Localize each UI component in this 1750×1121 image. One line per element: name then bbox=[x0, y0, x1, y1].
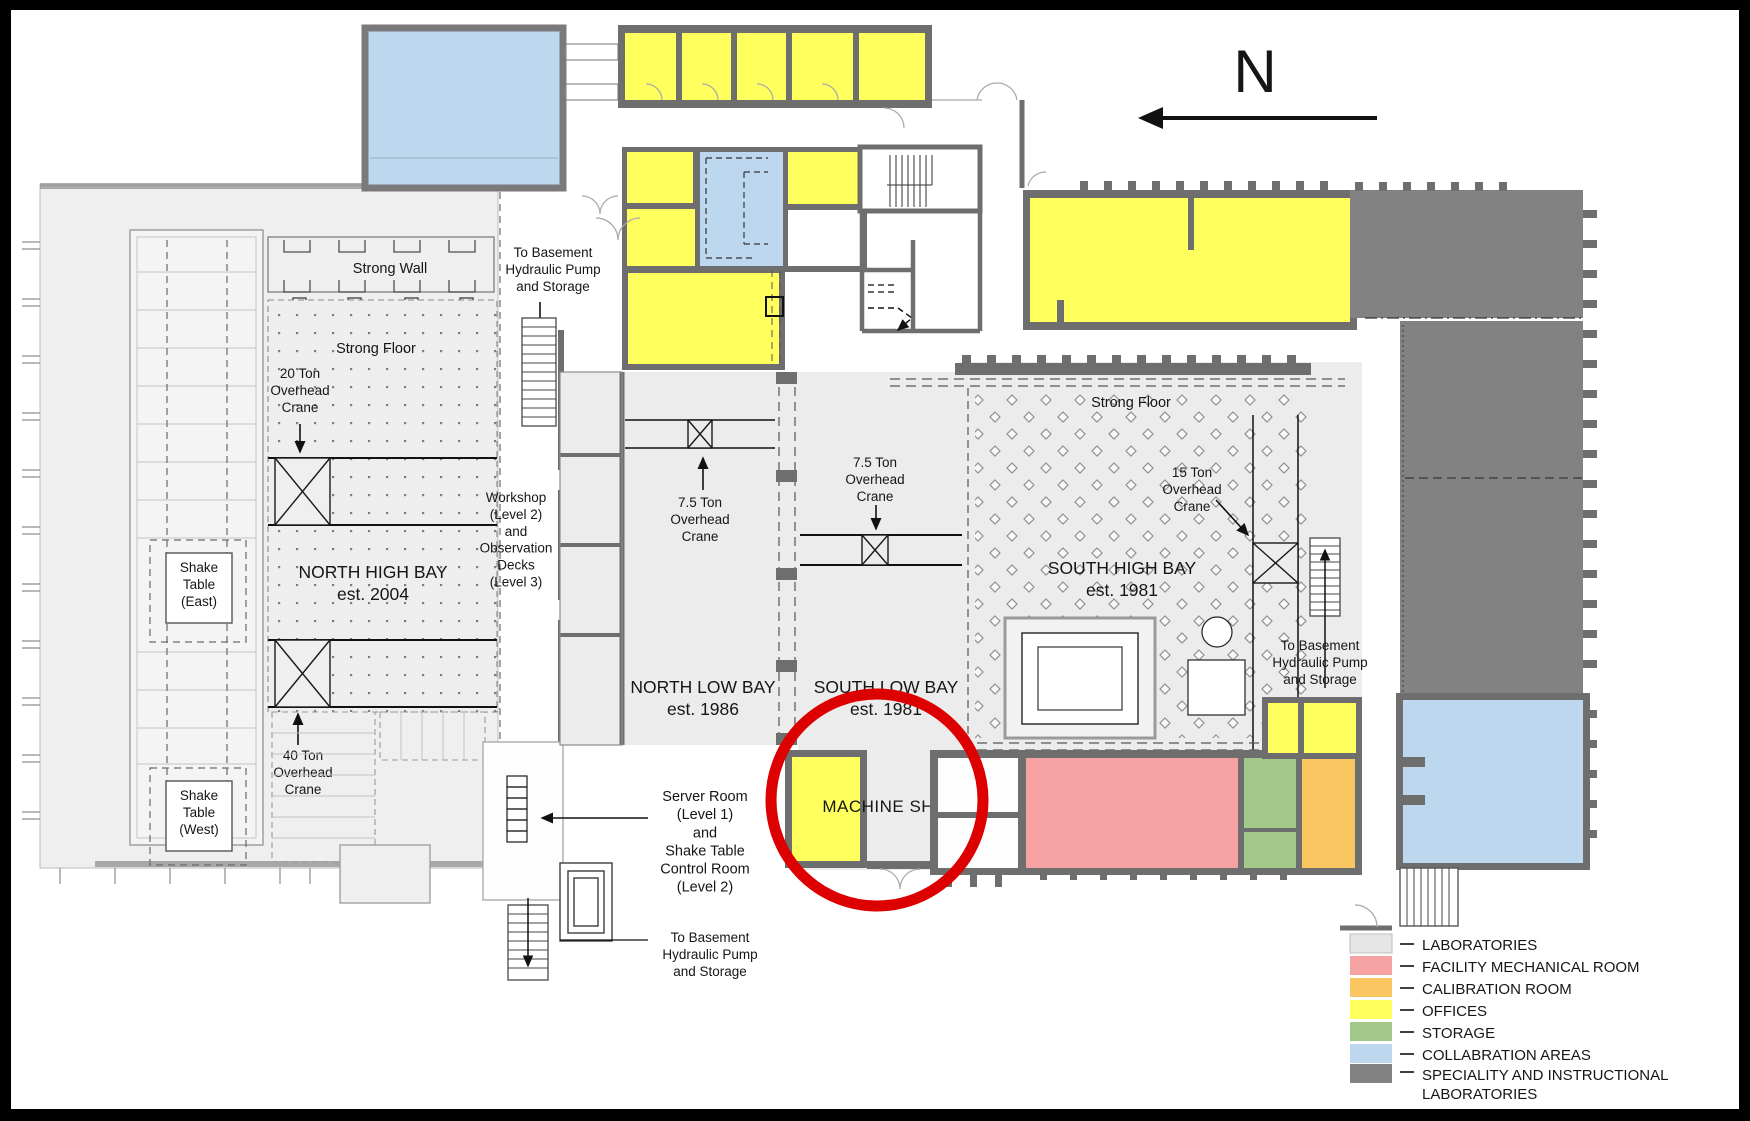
legend-swatch bbox=[1350, 1000, 1392, 1019]
south-protrusion bbox=[340, 845, 430, 903]
office-room bbox=[682, 33, 731, 100]
floor-plan-page: Strong Wall Strong Floor 20 TonOverheadC… bbox=[0, 0, 1750, 1121]
strong-wall-label: Strong Wall bbox=[353, 261, 427, 277]
speciality-labs-north bbox=[1350, 190, 1583, 318]
strong-floor-north-label: Strong Floor bbox=[336, 341, 416, 357]
office-room bbox=[627, 152, 693, 203]
legend-label: OFFICES bbox=[1422, 1003, 1487, 1020]
strong-wall: Strong Wall bbox=[268, 237, 494, 292]
workshop-label: Workshop(Level 2)andObservationDecks(Lev… bbox=[480, 490, 553, 589]
office-room-small bbox=[1304, 703, 1356, 753]
calibration-room bbox=[1302, 758, 1355, 868]
room bbox=[788, 210, 862, 266]
office-room bbox=[627, 209, 695, 266]
to-basement-top-label: To BasementHydraulic Pumpand Storage bbox=[505, 245, 600, 294]
floor-circle-feature bbox=[1202, 617, 1232, 647]
facility-mechanical-room bbox=[1026, 758, 1238, 868]
speciality-labs-south bbox=[1400, 321, 1583, 697]
to-basement-right-label: To BasementHydraulic Pumpand Storage bbox=[1272, 638, 1367, 687]
legend-swatch bbox=[1350, 978, 1392, 997]
legend-label: CALIBRATION ROOM bbox=[1422, 981, 1572, 998]
stairs-south-icon bbox=[508, 898, 548, 980]
office-room bbox=[625, 33, 676, 100]
to-basement-bottom-label: To BasementHydraulic Pumpand Storage bbox=[662, 930, 757, 979]
office-room bbox=[788, 152, 862, 204]
north-high-bay-building: Strong Wall Strong Floor 20 TonOverheadC… bbox=[22, 183, 500, 903]
office-room bbox=[792, 33, 853, 100]
north-letter: N bbox=[1233, 38, 1276, 105]
collaboration-room-southeast bbox=[1403, 700, 1583, 863]
elevator-icon bbox=[560, 863, 612, 941]
legend-label: COLLABRATION AREAS bbox=[1422, 1047, 1591, 1064]
strong-floor-south-label: Strong Floor bbox=[1091, 395, 1171, 411]
legend-swatch bbox=[1350, 1022, 1392, 1041]
shake-table-west-label: ShakeTable(West) bbox=[179, 788, 219, 837]
legend-swatch bbox=[1350, 1064, 1392, 1083]
floor-plan-canvas: Strong Wall Strong Floor 20 TonOverheadC… bbox=[0, 0, 1750, 1121]
office-room bbox=[859, 33, 925, 100]
legend-row: CALIBRATION ROOM bbox=[1350, 978, 1572, 998]
stairs-north-icon bbox=[522, 318, 556, 426]
legend-row: COLLABRATION AREAS bbox=[1350, 1044, 1591, 1064]
storage-room bbox=[1244, 758, 1296, 868]
shake-table-east-label: ShakeTable(East) bbox=[180, 560, 218, 609]
legend-label: FACILITY MECHANICAL ROOM bbox=[1422, 959, 1640, 976]
legend-row: STORAGE bbox=[1350, 1022, 1495, 1042]
legend-row: LABORATORIES bbox=[1350, 934, 1537, 954]
office-room-large bbox=[628, 273, 779, 364]
test-pit-structure bbox=[1005, 618, 1155, 738]
server-room bbox=[483, 742, 563, 900]
legend-label: STORAGE bbox=[1422, 1025, 1495, 1042]
office-room bbox=[737, 33, 786, 100]
stairwell-blue bbox=[700, 152, 783, 266]
legend-swatch bbox=[1350, 934, 1392, 953]
legend-swatch bbox=[1350, 1044, 1392, 1063]
office-room-small bbox=[1268, 703, 1298, 753]
legend-label: LABORATORIES bbox=[1422, 937, 1537, 954]
floor-square-feature bbox=[1188, 660, 1245, 715]
legend-swatch bbox=[1350, 956, 1392, 975]
